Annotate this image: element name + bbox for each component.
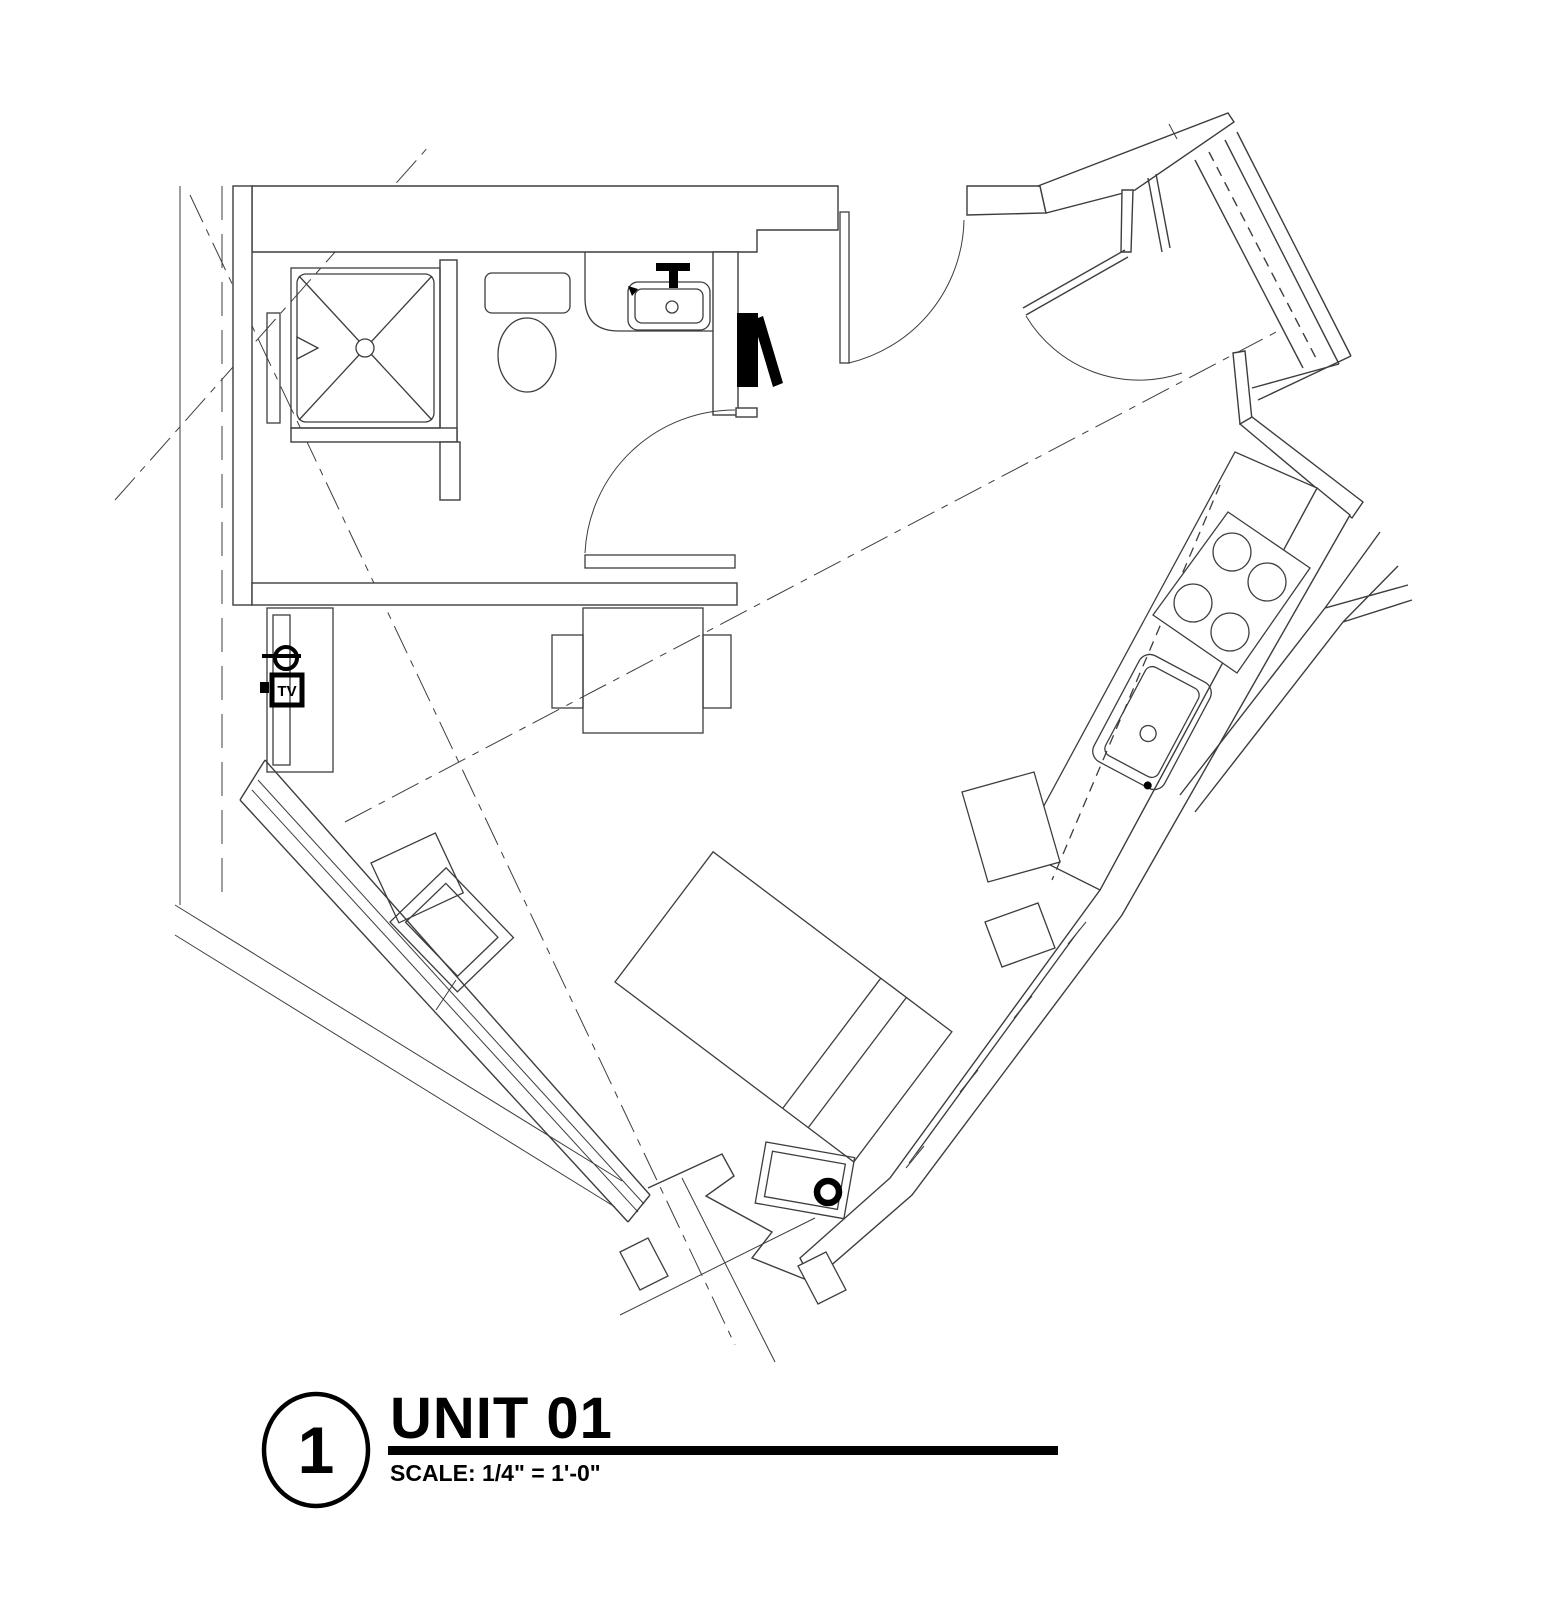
tv-mount-tick (260, 682, 269, 693)
windows (240, 760, 1086, 1222)
closet-door-stub-wall (1121, 190, 1133, 252)
floor-plan-sheet: TV (0, 0, 1542, 1597)
sink-drain (666, 301, 678, 313)
bathroom-door (585, 410, 735, 568)
bed-linen-line-2 (808, 997, 906, 1127)
door-leaf (840, 212, 849, 363)
toilet-tank (485, 273, 570, 313)
door-swing-arc (849, 220, 964, 363)
corridor-entry-door (840, 212, 964, 363)
vanity-sink-inner (635, 289, 703, 323)
shower-wall-south (291, 428, 457, 442)
wing-wall-left (620, 1238, 668, 1290)
vestibule-zigzag-wall (648, 1154, 812, 1282)
window-southwest (240, 760, 650, 1222)
lounge-chair (390, 868, 513, 992)
window-sill-cap-start (240, 760, 265, 800)
faucet-stem (669, 271, 678, 288)
window-glass-2 (909, 938, 1073, 1163)
wall-closet-return (1233, 351, 1252, 424)
door-swing-arc (585, 410, 735, 553)
door-leaf-edge-1 (1023, 250, 1125, 308)
bathroom-door-jamb (736, 408, 757, 417)
terrace-edge-1 (175, 905, 622, 1181)
nightstand-outline (755, 1142, 854, 1219)
tv-label: TV (277, 683, 296, 700)
drawing-title: UNIT 01 (390, 1386, 613, 1451)
title-underline (388, 1446, 1058, 1455)
dining-table (583, 608, 703, 733)
wall-west (233, 186, 252, 605)
shower-drain (356, 339, 374, 357)
x-brace-line-1 (682, 1178, 775, 1362)
terrace-edge-2 (175, 935, 615, 1207)
lounge-set (371, 833, 513, 992)
shower-wall-east (440, 260, 457, 442)
dining-set (552, 608, 731, 733)
toilet (485, 273, 570, 392)
toilet-bowl (498, 318, 556, 392)
title-block: 1 UNIT 01 SCALE: 1/4" = 1'-0" (264, 1386, 1058, 1506)
dining-chair-right (703, 635, 731, 708)
floor-outlet-icon (817, 1181, 839, 1203)
lounge-chair-seat (406, 883, 498, 976)
door-leaf-edge-2 (1026, 257, 1128, 315)
bed-outline (615, 852, 952, 1162)
closet-rod-line (1195, 160, 1303, 368)
closet-wall-south-inner (1252, 364, 1339, 388)
closet-wall-south-outer (1258, 356, 1351, 400)
wall-north (252, 186, 838, 252)
dining-chair-left (552, 635, 583, 708)
vanity-counter (585, 252, 713, 331)
wall-northeast-diagonal (1038, 113, 1234, 213)
door-swing-arc (1026, 316, 1182, 380)
kitchen (962, 452, 1317, 967)
living-area: TV (260, 608, 731, 992)
vanity (585, 252, 713, 331)
window-frame-inner (265, 760, 650, 1195)
base-cabinet-1 (962, 772, 1060, 882)
tv-wall: TV (260, 608, 333, 772)
wall-bathroom-south (252, 583, 737, 605)
plumbing-chase (267, 313, 280, 423)
diagonal-centerline-2 (190, 195, 735, 1345)
closet-wall-ne-outer (1237, 132, 1351, 356)
wall-north-right (967, 186, 1046, 215)
door-leaf (585, 555, 735, 568)
wall-stub-below-shower (440, 442, 460, 500)
wall-bathroom-east (713, 252, 738, 415)
black-pocket-door (737, 313, 783, 387)
base-cabinet-2 (985, 903, 1055, 967)
shower (267, 268, 440, 428)
faucet-icon (656, 263, 690, 271)
bathroom (267, 252, 713, 428)
closet-door (1023, 250, 1182, 380)
walls (233, 113, 1412, 1282)
closet (1148, 124, 1351, 400)
drawing-scale: SCALE: 1/4" = 1'-0" (390, 1460, 601, 1486)
nightstand (755, 1142, 854, 1219)
closet-wall-west-2 (1156, 174, 1170, 248)
bed (615, 852, 952, 1162)
detail-number: 1 (298, 1413, 335, 1487)
shower-head-icon (297, 337, 318, 359)
closet-wall-west-1 (1148, 178, 1162, 252)
bed-linen-line-1 (783, 978, 881, 1108)
floor-plan-drawing: TV (0, 0, 1542, 1597)
ottoman (371, 833, 463, 923)
